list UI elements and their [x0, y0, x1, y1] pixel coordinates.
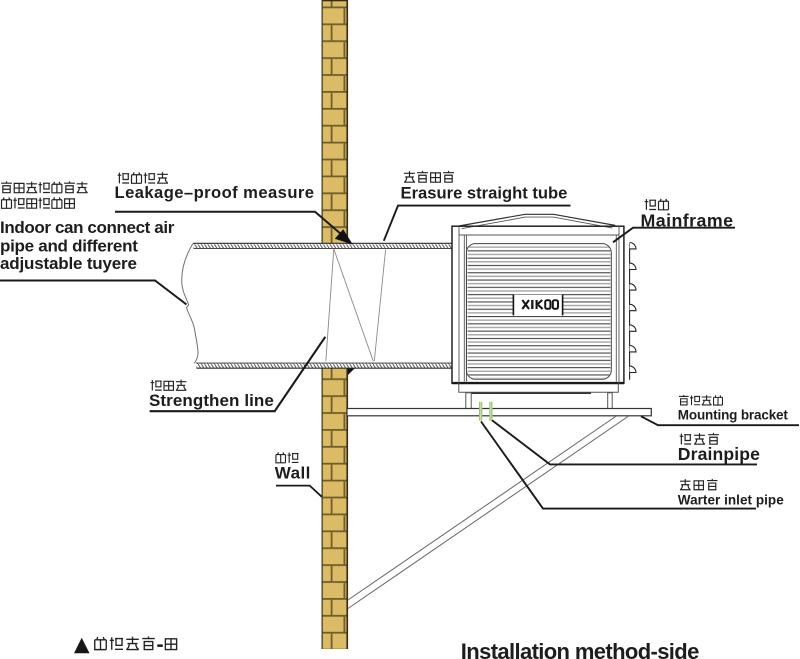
svg-text:Leakage–proof measure: Leakage–proof measure: [115, 183, 315, 202]
svg-text:pipe and different: pipe and different: [0, 236, 138, 255]
svg-text:Strengthen line: Strengthen line: [149, 391, 274, 410]
svg-text:Indoor can connect air: Indoor can connect air: [0, 218, 175, 237]
svg-text:adjustable tuyere: adjustable tuyere: [0, 254, 137, 273]
svg-text:Installation method-side: Installation method-side: [461, 639, 699, 659]
svg-text:Warter inlet pipe: Warter inlet pipe: [678, 492, 784, 507]
svg-text:Wall: Wall: [275, 464, 311, 483]
svg-text:Mainframe: Mainframe: [641, 210, 734, 230]
svg-text:Mounting bracket: Mounting bracket: [678, 408, 789, 423]
svg-text:Drainpipe: Drainpipe: [678, 444, 760, 464]
svg-text:Erasure straight tube: Erasure straight tube: [401, 184, 568, 203]
